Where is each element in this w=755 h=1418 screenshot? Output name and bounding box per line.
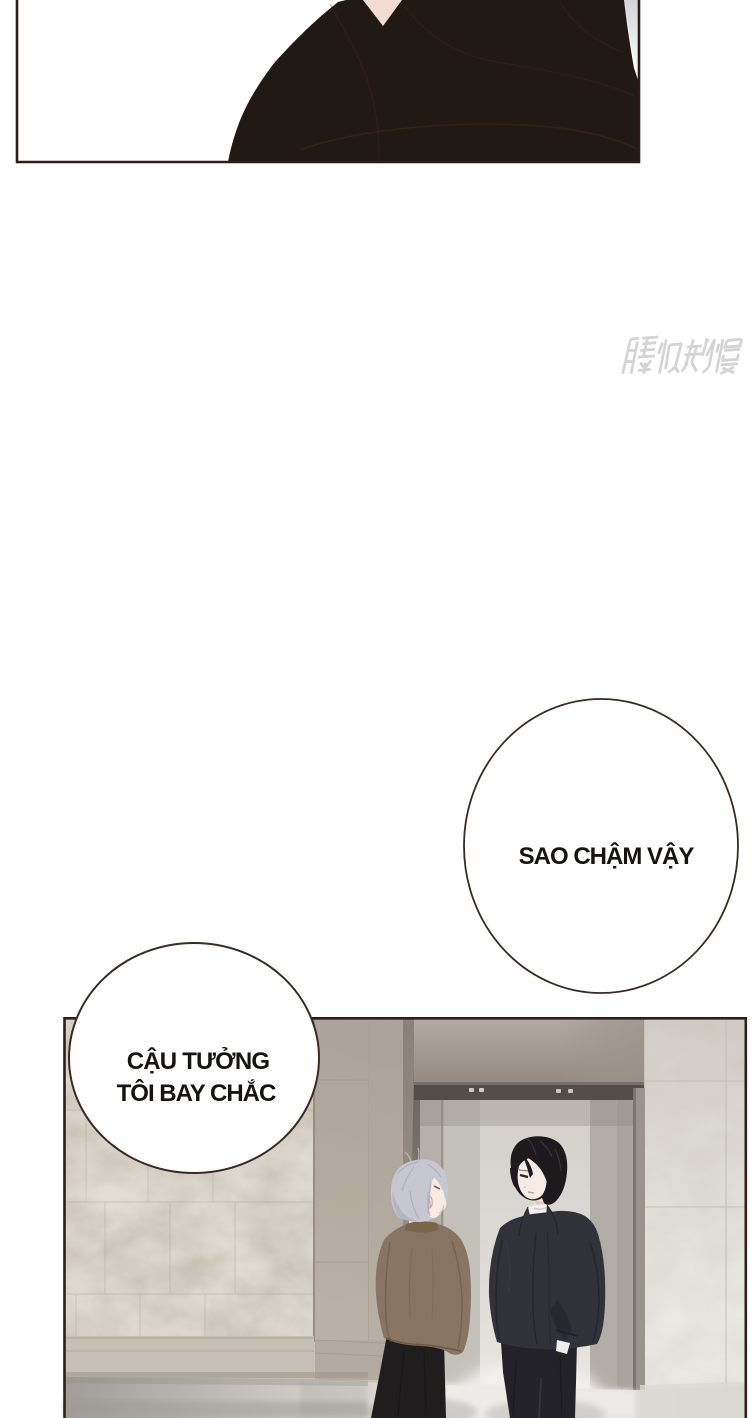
svg-text:CẬU TƯỞNG: CẬU TƯỞNG — [127, 1046, 270, 1075]
svg-text:TÔI BAY CHẮC: TÔI BAY CHẮC — [117, 1079, 276, 1107]
svg-text:SAO CHẬM VẬY: SAO CHẬM VẬY — [519, 842, 695, 870]
